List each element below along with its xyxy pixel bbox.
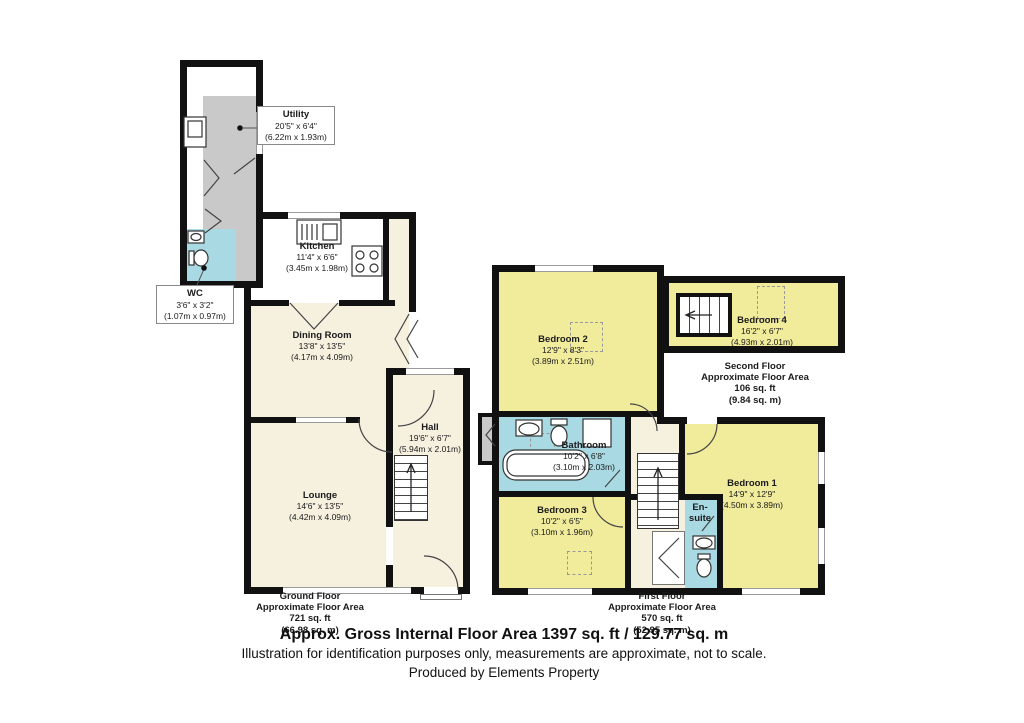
- dining-room-dims-m: (4.17m x 4.09m): [291, 352, 353, 362]
- kitchen-dims-m: (3.45m x 1.98m): [286, 263, 348, 273]
- second-floor-stairs: [676, 293, 732, 337]
- wc-dims-m: (1.07m x 0.97m): [164, 311, 226, 322]
- ground-floor-area-label: Approximate Floor Area: [256, 602, 364, 613]
- hall-dims-m: (5.94m x 2.01m): [399, 444, 461, 454]
- kitchen-label: Kitchen 11'4" x 6'6" (3.45m x 1.98m): [286, 241, 348, 273]
- bathroom-label: Bathroom 10'2" x 6'8" (3.10m x 2.03m): [553, 440, 615, 472]
- second-floor-sqft: 106 sq. ft: [701, 383, 809, 394]
- bedroom2-window: [535, 265, 593, 272]
- gross-internal-area-text: Approx. Gross Internal Floor Area 1397 s…: [0, 626, 1008, 644]
- bedroom2-bathroom-wall: [499, 411, 657, 417]
- first-floor-porch: [478, 413, 496, 465]
- hall-label: Hall 19'6" x 6'7" (5.94m x 2.01m): [399, 422, 461, 454]
- kitchen-right-wall: [383, 219, 389, 303]
- wc-floor: [187, 229, 236, 281]
- bedroom1-bottom-window: [742, 588, 800, 595]
- bedroom4-dims-m: (4.93m x 2.01m): [731, 337, 793, 347]
- bedroom3-dims-m: (3.10m x 1.96m): [531, 527, 593, 537]
- dining-french-door-gap: [409, 312, 416, 368]
- kitchen-dims-ft: 11'4" x 6'6": [286, 252, 348, 262]
- utility-corridor: [236, 219, 256, 281]
- hall-dims-ft: 19'6" x 6'7": [399, 433, 461, 443]
- front-door-gap: [424, 587, 458, 594]
- first-floor-title: First Floor: [608, 591, 716, 602]
- utility-label: Utility 20'5" x 6'4" (6.22m x 1.93m): [257, 106, 335, 145]
- wc-name: WC: [164, 288, 226, 300]
- bedroom1-right-window-upper: [818, 452, 825, 484]
- producer-text: Produced by Elements Property: [0, 665, 1008, 680]
- bathroom-dims-m: (3.10m x 2.03m): [553, 462, 615, 472]
- ensuite-name-line1: En-: [689, 502, 711, 513]
- dining-room-dims-ft: 13'8" x 13'5": [291, 341, 353, 351]
- bedroom1-label: Bedroom 1 14'9" x 12'9" (4.50m x 3.89m): [721, 478, 783, 510]
- utility-dims-ft: 20'5" x 6'4": [265, 121, 327, 132]
- bedroom1-dims-ft: 14'9" x 12'9": [721, 489, 783, 499]
- lounge-dims-ft: 14'6" x 13'5": [289, 501, 351, 511]
- second-floor-area-label: Approximate Floor Area: [701, 372, 809, 383]
- bedroom1-door-gap: [687, 417, 717, 424]
- wc-label: WC 3'6" x 3'2" (1.07m x 0.97m): [156, 285, 234, 324]
- bathroom-name: Bathroom: [553, 440, 615, 451]
- bedroom3-dims-ft: 10'2" x 6'5": [531, 516, 593, 526]
- ensuite-right-wall: [717, 500, 723, 588]
- bedroom2-label: Bedroom 2 12'9" x 8'3" (3.89m x 2.51m): [532, 334, 594, 366]
- corridor-wall: [625, 417, 631, 588]
- lounge-name: Lounge: [289, 490, 351, 501]
- hall-name: Hall: [399, 422, 461, 433]
- landing-stairs: [637, 453, 679, 529]
- kitchen-name: Kitchen: [286, 241, 348, 252]
- bedroom1-name: Bedroom 1: [721, 478, 783, 489]
- kitchen-window: [288, 212, 340, 219]
- bedroom3-dashed-area: [567, 551, 592, 575]
- bathroom-dims-ft: 10'2" x 6'8": [553, 451, 615, 461]
- bedroom3-label: Bedroom 3 10'2" x 6'5" (3.10m x 1.96m): [531, 505, 593, 537]
- disclaimer-text: Illustration for identification purposes…: [0, 646, 1008, 661]
- hall-window: [406, 368, 454, 375]
- bedroom3-window: [528, 588, 592, 595]
- lounge-dims-m: (4.42m x 4.09m): [289, 512, 351, 522]
- second-floor-sqm: (9.84 sq. m): [701, 395, 809, 406]
- lounge-door-gap: [386, 527, 393, 565]
- kitchen-wall-right: [339, 300, 395, 306]
- bedroom2-dims-m: (3.89m x 2.51m): [532, 356, 594, 366]
- hall-stairs: [394, 455, 428, 521]
- first-floor-sqft: 570 sq. ft: [608, 613, 716, 624]
- bedroom4-name: Bedroom 4: [731, 315, 793, 326]
- ground-floor-sqft: 721 sq. ft: [256, 613, 364, 624]
- bathroom-bedroom3-wall: [499, 491, 631, 497]
- bedroom1-right-window-lower: [818, 528, 825, 564]
- kitchen-wall-left: [251, 300, 289, 306]
- bathroom-dashed-area: [530, 433, 555, 458]
- bedroom4-label: Bedroom 4 16'2" x 6'7" (4.93m x 2.01m): [731, 315, 793, 347]
- bedroom2-name: Bedroom 2: [532, 334, 594, 345]
- bedroom1-west-wall: [679, 424, 685, 494]
- bedroom3-name: Bedroom 3: [531, 505, 593, 516]
- utility-name: Utility: [265, 109, 327, 121]
- utility-dims-m: (6.22m x 1.93m): [265, 132, 327, 143]
- ensuite-name-line2: suite: [689, 513, 711, 524]
- ensuite-shower-cubicle: [652, 531, 685, 585]
- floorplan-canvas: Utility 20'5" x 6'4" (6.22m x 1.93m) WC …: [0, 0, 1024, 723]
- first-floor-area-label: Approximate Floor Area: [608, 602, 716, 613]
- lounge-label: Lounge 14'6" x 13'5" (4.42m x 4.09m): [289, 490, 351, 522]
- utility-floor: [203, 96, 256, 229]
- second-floor-summary: Second Floor Approximate Floor Area 106 …: [701, 361, 809, 406]
- front-door-step: [420, 594, 462, 600]
- dining-lounge-window: [296, 417, 346, 423]
- bedroom4-dims-ft: 16'2" x 6'7": [731, 326, 793, 336]
- ensuite-label: En- suite: [689, 502, 711, 525]
- wc-dims-ft: 3'6" x 3'2": [164, 300, 226, 311]
- second-floor-title: Second Floor: [701, 361, 809, 372]
- bedroom2-dims-ft: 12'9" x 8'3": [532, 345, 594, 355]
- dining-room-name: Dining Room: [291, 330, 353, 341]
- ground-floor-title: Ground Floor: [256, 591, 364, 602]
- bedroom1-dims-m: (4.50m x 3.89m): [721, 500, 783, 510]
- dining-room-label: Dining Room 13'8" x 13'5" (4.17m x 4.09m…: [291, 330, 353, 362]
